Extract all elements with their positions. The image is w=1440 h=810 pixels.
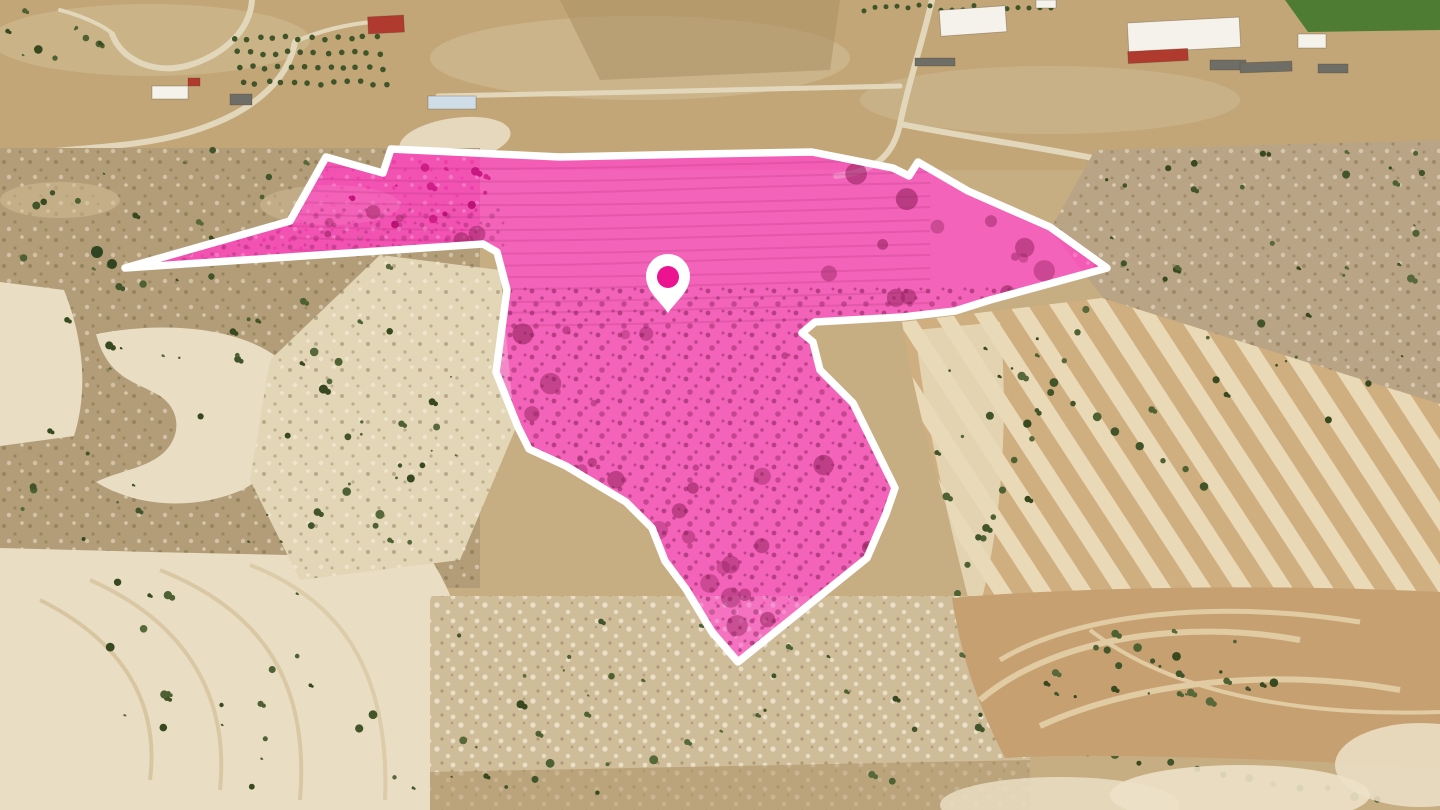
palm-tree [107, 259, 117, 269]
aerial-view [0, 0, 1440, 810]
green-crop-field [1285, 0, 1440, 32]
palm-tree [91, 246, 103, 258]
pin-dot [657, 266, 679, 288]
aerial-photo [0, 0, 1440, 810]
